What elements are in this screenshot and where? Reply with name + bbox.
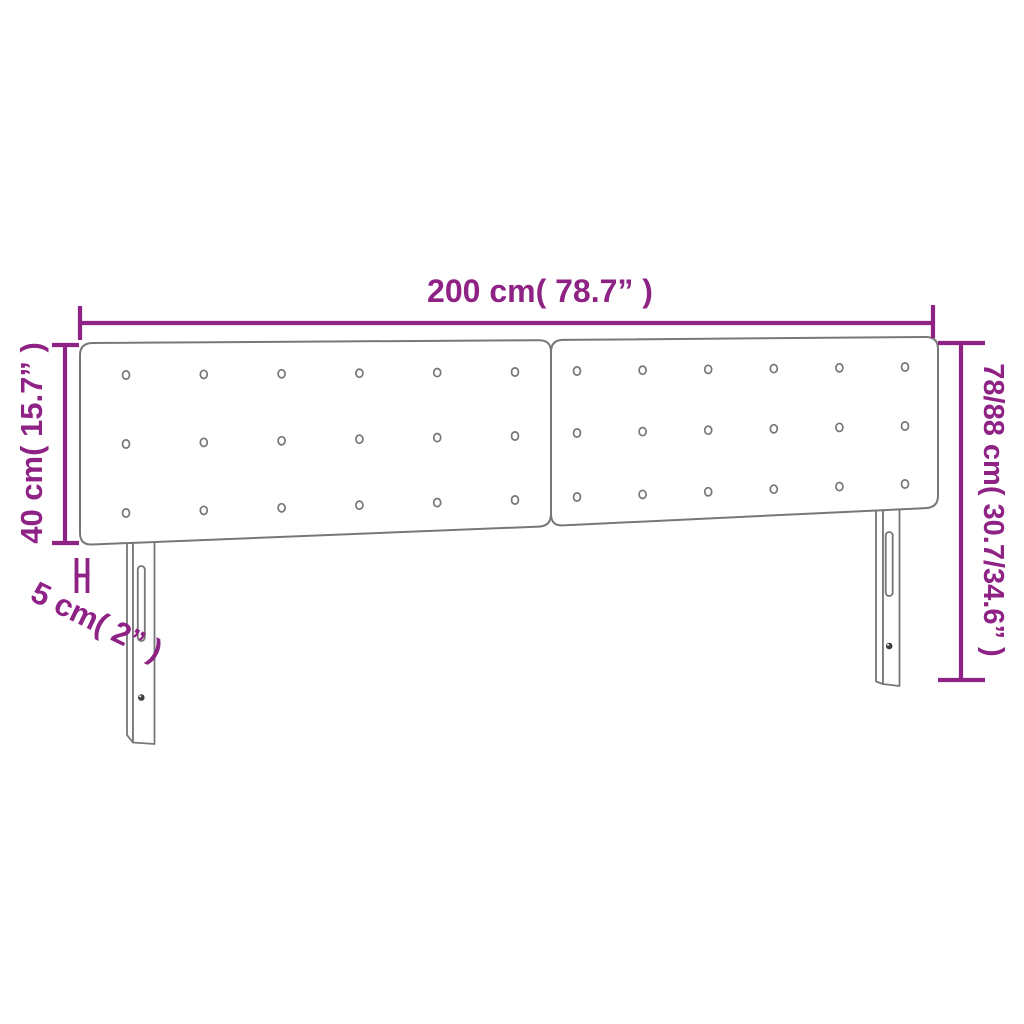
tufting-button — [836, 423, 843, 431]
tufting-button — [278, 437, 285, 445]
tufting-button — [902, 363, 909, 371]
tufting-button — [902, 480, 909, 488]
tufting-button — [836, 483, 843, 491]
tufting-button — [705, 488, 712, 496]
width-dimension-label: 200 cm( 78.7” ) — [427, 273, 653, 309]
right-leg-screw-hole-glint — [887, 644, 889, 646]
tufting-button — [434, 499, 441, 507]
tufting-button — [278, 504, 285, 512]
panel-height-dimension-label: 40 cm( 15.7” ) — [14, 342, 49, 544]
tufting-button — [123, 509, 130, 517]
tufting-button — [434, 369, 441, 377]
tufting-button — [123, 371, 130, 379]
tufting-button — [639, 490, 646, 498]
tufting-button — [574, 493, 581, 501]
right-leg-screw-hole — [886, 643, 893, 650]
left-leg-screw-hole — [138, 694, 145, 701]
product-diagram: 200 cm( 78.7” ) 40 cm( 15.7” ) 78/88 cm(… — [0, 0, 1024, 1024]
tufting-button — [770, 365, 777, 373]
tufting-button — [574, 429, 581, 437]
headboard-left-panel — [80, 340, 551, 544]
tufting-button — [770, 485, 777, 493]
total-height-dimension: 78/88 cm( 30.7/34.6” ) — [938, 343, 1009, 680]
tufting-button — [836, 364, 843, 372]
tufting-button — [639, 366, 646, 374]
tufting-button — [356, 501, 363, 509]
headboard-right-panel — [551, 337, 938, 525]
tufting-button — [705, 365, 712, 373]
left-leg-screw-hole-glint — [139, 695, 141, 697]
tufting-button — [639, 428, 646, 436]
tufting-button — [356, 369, 363, 377]
headboard — [80, 337, 938, 545]
tufting-button — [200, 370, 207, 378]
tufting-button — [705, 426, 712, 434]
tufting-button — [356, 435, 363, 443]
tufting-button — [123, 440, 130, 448]
panel-height-dimension: 40 cm( 15.7” ) — [14, 342, 79, 544]
tufting-button — [902, 422, 909, 430]
tufting-button — [574, 367, 581, 375]
right-leg-side-face — [876, 505, 883, 684]
tufting-button — [512, 432, 519, 440]
right-leg — [876, 505, 900, 686]
right-leg-slot — [886, 532, 893, 596]
tufting-button — [512, 368, 519, 376]
tufting-button — [512, 496, 519, 504]
tufting-button — [200, 506, 207, 514]
width-dimension: 200 cm( 78.7” ) — [80, 273, 933, 340]
tufting-button — [770, 425, 777, 433]
tufting-button — [278, 370, 285, 378]
total-height-dimension-label: 78/88 cm( 30.7/34.6” ) — [977, 363, 1009, 656]
tufting-button — [434, 434, 441, 442]
tufting-button — [200, 438, 207, 446]
